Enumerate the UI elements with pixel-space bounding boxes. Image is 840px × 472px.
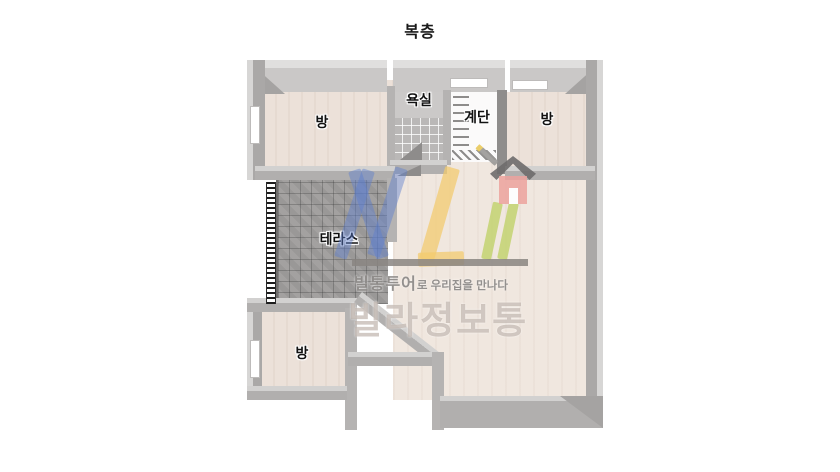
wall-room-tr-south <box>505 166 595 180</box>
skylight-stairs <box>450 78 488 88</box>
room-top-left-floor <box>262 80 397 180</box>
stair-hatch <box>452 150 496 160</box>
wall-room-tl-south <box>255 166 395 180</box>
window-room-tl <box>250 106 260 144</box>
room-label-staircase: 계단 <box>464 107 490 127</box>
room-label-bottom-left: 방 <box>296 343 309 363</box>
wall-top-seg-b <box>393 60 443 92</box>
room-label-terrace: 테라스 <box>320 229 359 249</box>
skylight-room-tr <box>512 80 548 90</box>
page-title: 복층 <box>0 18 840 42</box>
wall-right <box>586 60 603 428</box>
room-label-top-left: 방 <box>316 112 329 132</box>
wall-stairs-room <box>497 90 507 174</box>
terrace-railing <box>266 182 276 304</box>
room-label-bathroom: 욕실 <box>406 90 432 110</box>
wall-notch-top <box>348 352 442 366</box>
wall-room-bl-east <box>345 308 357 430</box>
floorplan-canvas: 복층 방 욕실 계단 방 테라스 방 <box>0 0 840 472</box>
room-top-right-floor <box>505 92 590 176</box>
wall-bathroom-stairs <box>443 90 451 165</box>
room-label-top-right: 방 <box>541 109 554 129</box>
wall-terrace-east <box>387 178 397 242</box>
window-room-bl <box>250 340 260 378</box>
wall-terrace-south <box>247 298 357 312</box>
wall-room-bl-south <box>247 386 347 400</box>
